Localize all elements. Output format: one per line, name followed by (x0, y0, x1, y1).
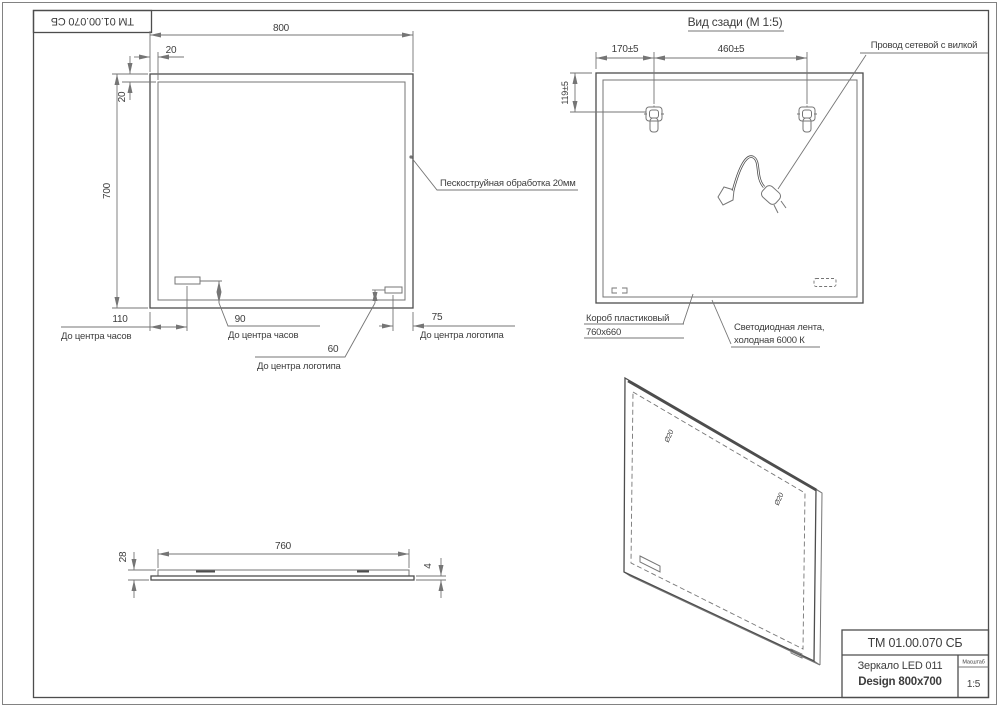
dim-border-top-label: 20 (166, 45, 177, 56)
title-block-code: ТМ 01.00.070 СБ (868, 636, 963, 650)
hanger-right-icon (797, 106, 817, 133)
scale-value: 1:5 (967, 679, 981, 690)
power-cable (718, 157, 786, 213)
side-view: 760 28 4 (118, 541, 446, 598)
dim-glass-thickness: 4 (416, 558, 446, 598)
dim-clock-from-bottom-label: 90 (235, 314, 246, 325)
front-view: 800 20 20 700 110 До центра ч (61, 23, 578, 372)
cable-connector-icon (718, 187, 734, 205)
dim-border-side-label: 20 (117, 91, 128, 102)
scale-label: Масштаб (962, 660, 984, 666)
mirror-inner-edge (158, 82, 405, 300)
led-driver-dashed-icon (814, 279, 836, 287)
dim-width-label: 800 (273, 23, 290, 34)
power-plug-icon (760, 184, 786, 213)
title-block: ТМ 01.00.070 СБ Зеркало LED 011 Design 8… (842, 630, 989, 698)
back-box-outline (596, 73, 863, 303)
back-view: Вид сзади (М 1:5) 170±5 460±5 119±5 (560, 15, 988, 347)
sandblast-callout-label: Пескоструйная обработка 20мм (440, 178, 576, 189)
designation-code-rotated: ТМ 01.00.070 СБ (51, 15, 134, 27)
page-frame (3, 3, 997, 705)
dim-hanger-depth-label: 119±5 (560, 81, 570, 104)
dim-logo-from-right: 75 До центра логотипа (379, 295, 515, 341)
dim-hangers-top: 170±5 460±5 (596, 44, 807, 104)
cable-callout: Провод сетевой с вилкой (778, 40, 988, 189)
product-name-line2: Design 800x700 (858, 676, 942, 688)
dim-side-length-label: 760 (275, 541, 292, 552)
cable-callout-label: Провод сетевой с вилкой (871, 40, 978, 51)
cable-curve (733, 157, 764, 191)
led-mark-left-icon (612, 288, 627, 293)
side-glass-profile (151, 576, 414, 580)
led-strip-marks (612, 279, 836, 294)
inner-frame (34, 11, 989, 698)
drawing-canvas: ТМ 01.00.070 СБ 800 20 20 (0, 0, 1000, 708)
dim-clock-from-bottom-caption: До центра часов (228, 330, 298, 341)
drawing-sheet: ТМ 01.00.070 СБ 800 20 20 (0, 0, 1000, 708)
outer-border (3, 3, 997, 705)
dim-logo-from-right-label: 75 (432, 312, 443, 323)
dim-height: 700 (102, 74, 148, 308)
box-callout: Короб пластиковый 760х660 (584, 294, 693, 338)
dim-logo-from-bottom-label: 60 (328, 344, 339, 355)
dim-glass-thickness-label: 4 (423, 563, 434, 569)
dim-logo-from-bottom-caption: До центра логотипа (257, 361, 342, 372)
box-callout-line2: 760х660 (586, 327, 621, 338)
led-callout: Светодиодная лента, холодная 6000 К (712, 300, 824, 347)
dim-side-height-label: 28 (118, 551, 129, 562)
led-callout-line2: холодная 6000 К (734, 335, 805, 346)
dim-border-top: 20 (134, 45, 184, 80)
sandblast-callout: Пескоструйная обработка 20мм (409, 155, 578, 190)
clock-window (175, 277, 200, 284)
iso-view: Ø20 Ø20 (624, 378, 822, 665)
dim-logo-from-right-caption: До центра логотипа (420, 330, 505, 341)
dim-clock-from-left-label: 110 (112, 314, 128, 325)
dim-clock-from-bottom: 90 До центра часов (200, 281, 320, 341)
dim-clock-from-left: 110 До центра часов (61, 286, 187, 342)
designation-box: ТМ 01.00.070 СБ (34, 11, 152, 33)
box-callout-line1: Короб пластиковый (586, 313, 669, 324)
dim-width: 800 (150, 23, 413, 72)
dim-height-label: 700 (102, 182, 113, 199)
product-name-line1: Зеркало LED 011 (858, 660, 943, 672)
dim-side-length: 760 (158, 541, 409, 568)
hanger-left-icon (644, 106, 664, 133)
side-box-profile (158, 570, 409, 576)
logo-window (385, 287, 402, 293)
back-view-title: Вид сзади (М 1:5) (688, 15, 783, 29)
dim-hanger-span-label: 460±5 (718, 44, 745, 55)
dim-clock-from-left-caption: До центра часов (61, 331, 131, 342)
dim-hanger-left-label: 170±5 (612, 44, 639, 55)
mirror-outline (150, 74, 413, 308)
dim-side-height: 28 (118, 551, 156, 598)
led-callout-line1: Светодиодная лента, (734, 322, 824, 333)
